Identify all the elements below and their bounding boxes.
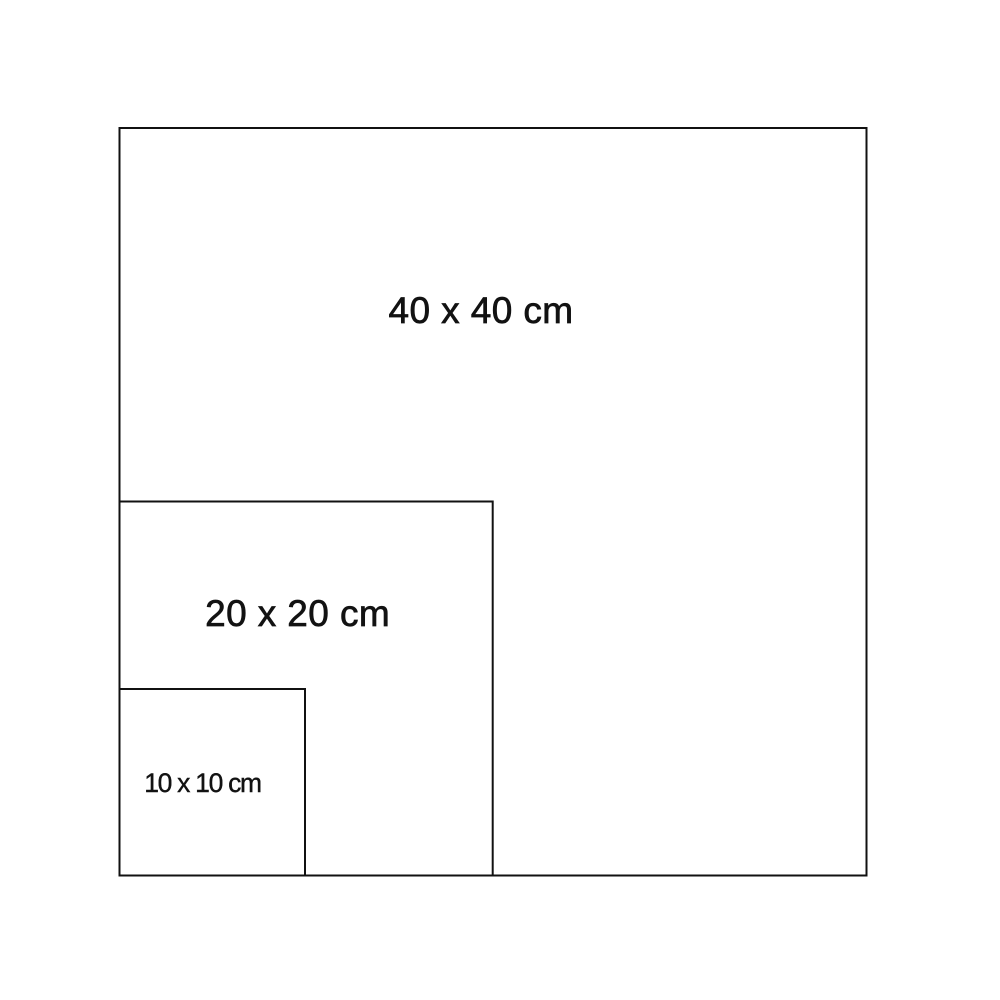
svg-text:40 x 40 cm: 40 x 40 cm [389,290,574,331]
svg-text:20 x 20 cm: 20 x 20 cm [205,593,390,634]
svg-text:10 x 10 cm: 10 x 10 cm [144,768,261,798]
